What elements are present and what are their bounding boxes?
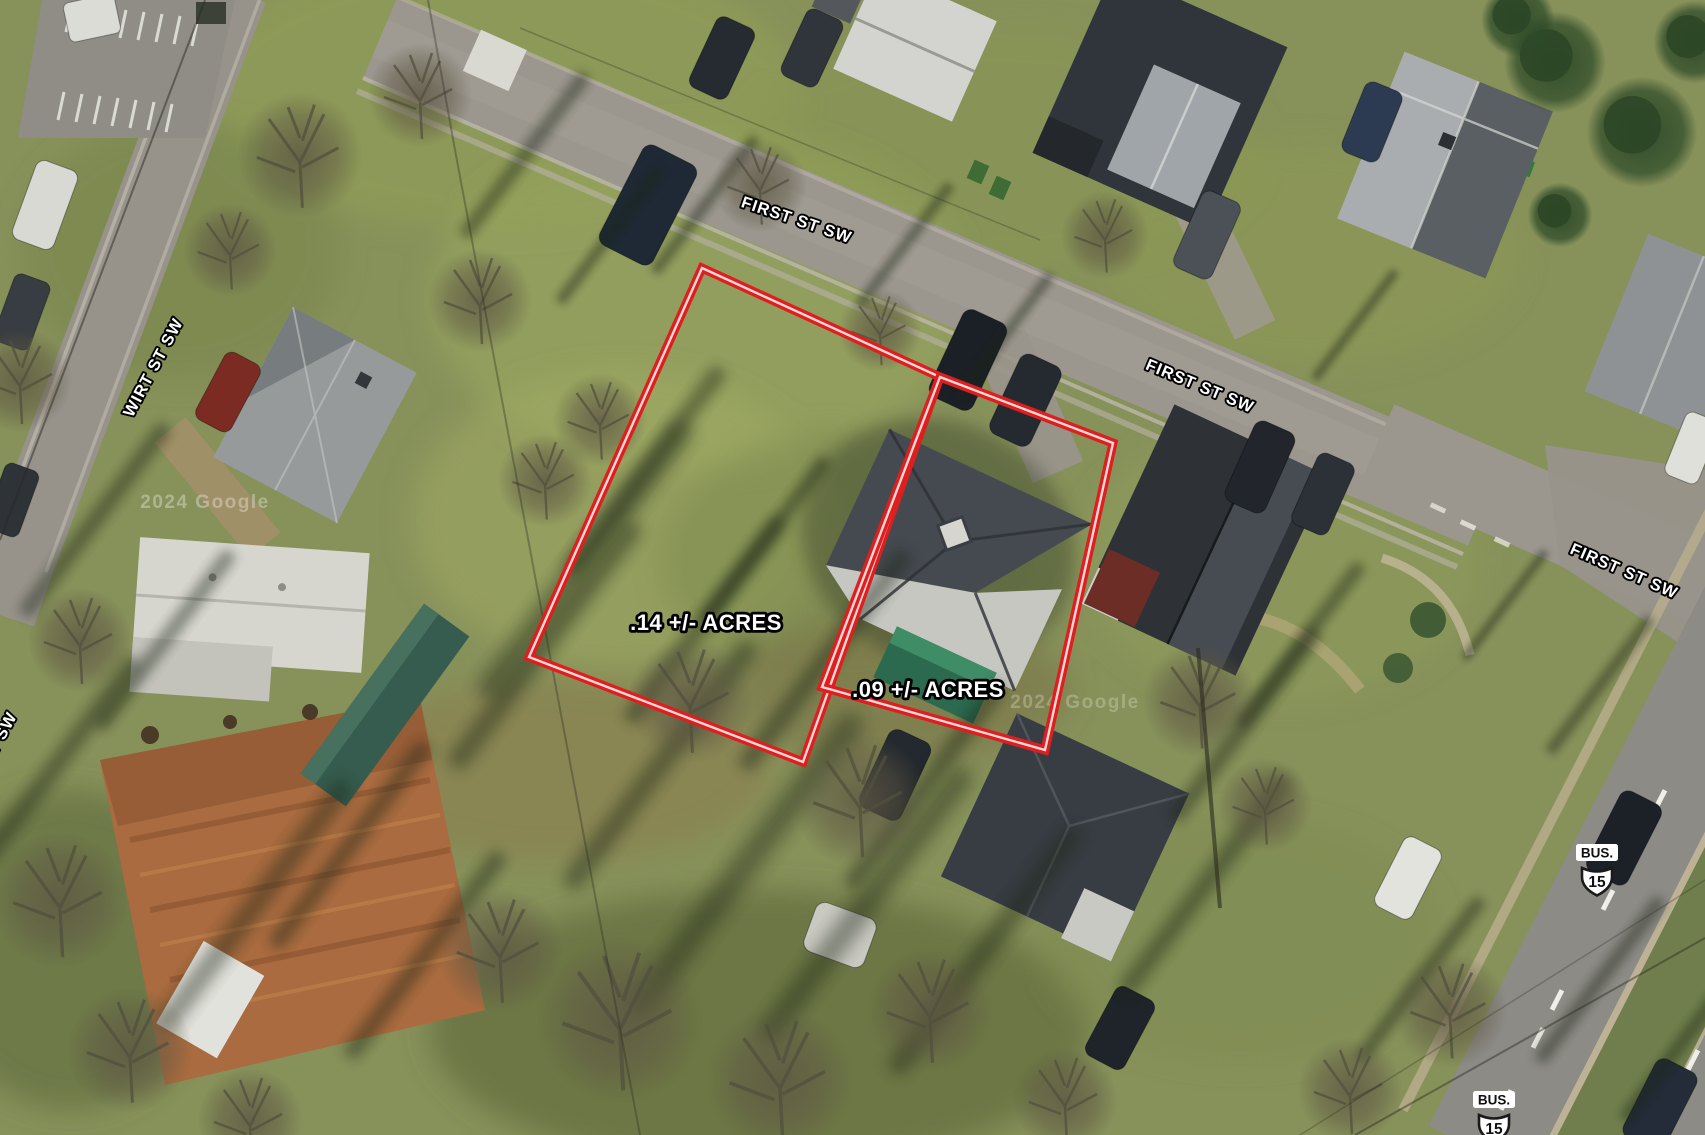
acreage-label-014: .14 +/- ACRES: [630, 610, 782, 635]
tree-canopy: [868, 948, 993, 1073]
tree-canopy: [238, 93, 363, 218]
tree-canopy: [498, 433, 592, 527]
tree-canopy: [1218, 758, 1312, 852]
tree-canopy: [428, 248, 532, 352]
conifer-tree: [1587, 77, 1697, 187]
tree-canopy: [183, 203, 277, 297]
conifer-tree: [1528, 183, 1592, 247]
bush: [1383, 653, 1413, 683]
aerial-map-image: 2024 Google 2024 Google .14 +/- ACRES .0…: [0, 0, 1705, 1135]
bush: [1410, 602, 1446, 638]
tree-canopy: [537, 937, 703, 1103]
shield-banner-text: BUS.: [1478, 1093, 1510, 1108]
tree-canopy: [28, 588, 132, 692]
tree-canopy: [792, 732, 927, 867]
tree-canopy: [1393, 953, 1507, 1067]
tree-canopy: [68, 988, 193, 1113]
watermark: 2024 Google: [1010, 692, 1140, 713]
tree-canopy: [1061, 191, 1149, 279]
satellite-map: 2024 Google 2024 Google .14 +/- ACRES .0…: [0, 0, 1705, 1135]
shield-number: 15: [1588, 874, 1606, 891]
acreage-label-009: .09 +/- ACRES: [852, 677, 1004, 702]
tree-canopy: [368, 43, 472, 147]
watermark: 2024 Google: [140, 492, 270, 513]
shield-banner-text: BUS.: [1581, 846, 1613, 861]
shield-number: 15: [1485, 1121, 1503, 1135]
parking-lot: [18, 0, 235, 138]
